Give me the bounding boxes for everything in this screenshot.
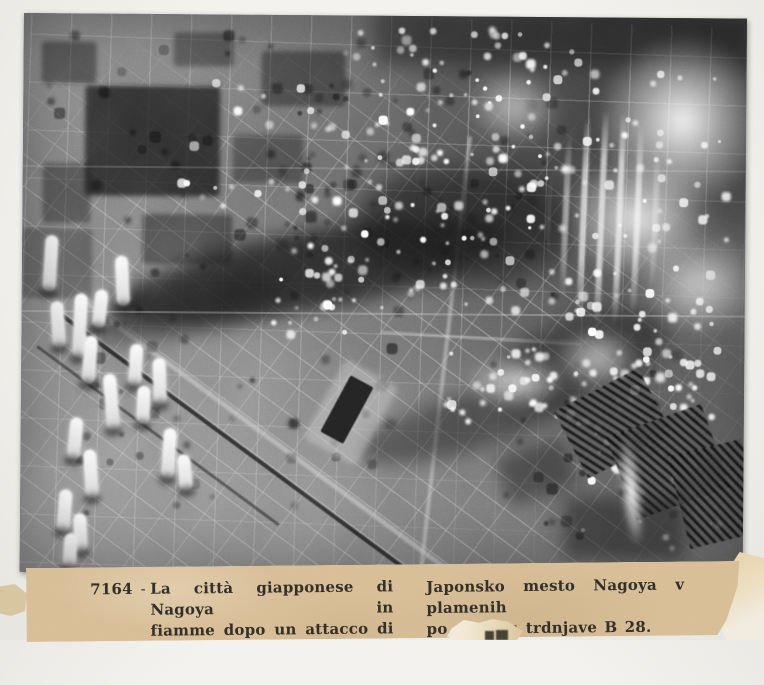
fire-cluster xyxy=(173,79,175,81)
bomb-streak xyxy=(92,289,109,328)
dark-block xyxy=(174,32,234,66)
smoke-streak xyxy=(352,166,573,288)
dark-block xyxy=(233,135,303,184)
photo-mount: { "caption": { "left": { "number": "7164… xyxy=(0,0,764,640)
fire-streak xyxy=(614,435,649,549)
factory-block xyxy=(668,439,747,549)
smoke-streak xyxy=(483,290,679,426)
diagonal-road xyxy=(78,296,475,578)
factory-block xyxy=(607,404,731,520)
film-grain xyxy=(20,13,747,578)
caption-italian: 7164 - La città giapponese di Nagoya in … xyxy=(90,576,403,684)
fire-cluster xyxy=(441,346,443,348)
roads-and-railways xyxy=(20,13,747,578)
bomb-streak xyxy=(42,235,58,292)
dark-block xyxy=(261,51,345,107)
smoke-cloud xyxy=(451,54,577,160)
city-street-grid xyxy=(20,13,747,578)
caption-dash: - xyxy=(136,579,150,621)
bomb-streak xyxy=(103,373,120,430)
dark-cluster xyxy=(269,70,271,72)
bomb-streak xyxy=(177,454,193,491)
fire-cluster xyxy=(257,240,259,242)
burning-blocks-stripes xyxy=(540,107,675,327)
drifting-smoke xyxy=(20,13,747,578)
photo-base-tones xyxy=(20,13,747,578)
factory-shadow xyxy=(494,437,577,508)
factory-district xyxy=(20,13,747,578)
bomb-streak xyxy=(67,417,84,460)
smoke-streak xyxy=(348,368,584,479)
caption-line: 7164 - La città giapponese di Nagoya in xyxy=(90,576,402,621)
falling-bombs xyxy=(20,13,747,578)
smoke-cloud xyxy=(567,13,747,239)
smoke-plume xyxy=(20,13,747,578)
large-building-compound xyxy=(20,13,747,578)
fire-cluster xyxy=(313,155,315,157)
smoke-cloud xyxy=(539,315,655,401)
smoke-cloud xyxy=(449,344,585,420)
bomb-streak xyxy=(161,428,177,479)
fire-cluster xyxy=(584,72,586,74)
caption-line: fiamme dopo un attacco di superfor- xyxy=(151,618,394,662)
caption-number: 7164 xyxy=(90,579,136,621)
burned-city-blocks xyxy=(20,13,747,578)
fire-cluster xyxy=(567,262,569,264)
cross-road xyxy=(381,331,581,346)
field-grid xyxy=(20,13,747,578)
bomb-streak xyxy=(56,489,72,532)
smoke-streak xyxy=(79,257,305,357)
dark-block xyxy=(374,13,747,69)
dark-cluster xyxy=(44,33,46,35)
caption-strip: 7164 - La città giapponese di Nagoya in … xyxy=(26,561,744,642)
dark-cluster xyxy=(491,347,493,349)
scrap-ink-mark xyxy=(496,630,508,640)
smoke-streak xyxy=(108,194,516,346)
fire-cluster xyxy=(606,348,608,350)
bomb-streak xyxy=(50,301,66,348)
scratch-line xyxy=(23,165,746,172)
bomb-streak xyxy=(83,449,99,498)
vertical-road xyxy=(419,136,472,574)
caption-line: Japonsko mesto Nagoya v plamenih xyxy=(426,574,684,619)
factory-shadow xyxy=(565,497,685,558)
smoke-cloud xyxy=(619,216,747,352)
fire-cluster xyxy=(344,28,346,30)
dark-block xyxy=(41,41,96,83)
bomb-streak xyxy=(63,533,78,568)
dark-block xyxy=(142,214,232,265)
large-building xyxy=(320,375,373,444)
photo-vignette xyxy=(20,13,747,578)
bomb-streak xyxy=(128,344,144,387)
scrap-ink-mark xyxy=(485,631,494,640)
factory-block xyxy=(554,368,673,478)
bomb-streak xyxy=(115,256,130,307)
bomb-streak xyxy=(72,293,88,357)
caption-text: La città giapponese di Nagoya in xyxy=(150,576,393,620)
building-courtyard xyxy=(303,359,399,467)
tonal-mottle xyxy=(20,13,747,578)
smoke-cloud xyxy=(540,135,736,302)
bomb-streak xyxy=(73,513,88,552)
caption-line: tezze B. 28. xyxy=(151,660,394,683)
bomb-streak xyxy=(136,386,151,425)
bomb-streak xyxy=(81,335,98,384)
dark-block xyxy=(85,85,221,196)
railway-line xyxy=(36,345,279,526)
tape-patch-left xyxy=(0,584,27,616)
dark-block xyxy=(22,228,93,299)
fire-cluster xyxy=(536,397,538,399)
aerial-photo xyxy=(20,13,747,578)
railway-line xyxy=(60,314,448,578)
bomb-streak xyxy=(152,358,166,404)
scratch-line xyxy=(22,310,745,317)
dark-block xyxy=(42,163,90,223)
dark-cluster xyxy=(77,298,79,300)
